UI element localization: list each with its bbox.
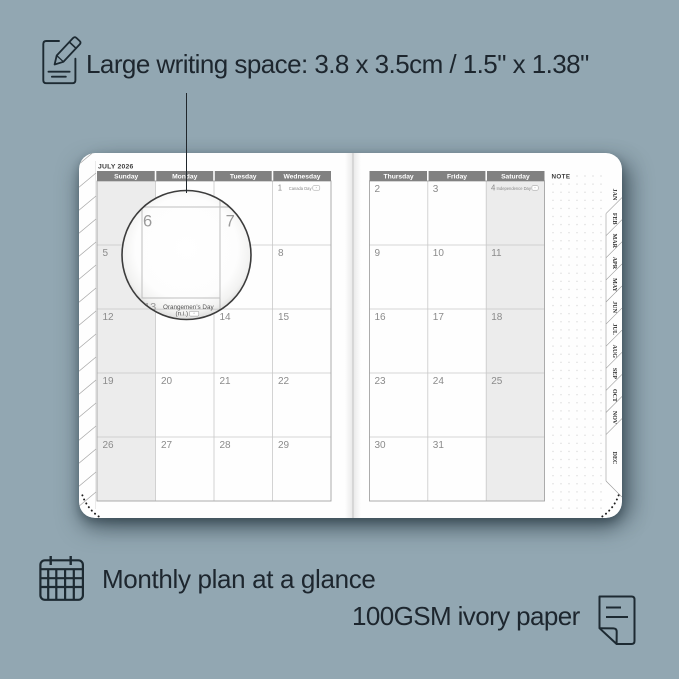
svg-text:JAN: JAN xyxy=(611,189,617,201)
svg-text:OCT: OCT xyxy=(611,389,617,402)
svg-text:Independence Day: Independence Day xyxy=(497,186,532,191)
svg-text:Orangemen’s Day: Orangemen’s Day xyxy=(163,304,214,311)
svg-text:10: 10 xyxy=(433,248,445,259)
svg-text:17: 17 xyxy=(433,312,445,323)
svg-text:NOV: NOV xyxy=(611,411,617,425)
svg-text:31: 31 xyxy=(433,440,445,451)
svg-text:1: 1 xyxy=(278,184,282,193)
svg-text:Canada Day: Canada Day xyxy=(289,186,313,191)
svg-text:Sunday: Sunday xyxy=(114,174,138,181)
svg-text:14: 14 xyxy=(220,312,232,323)
svg-text:11: 11 xyxy=(491,248,502,259)
svg-text:JULY 2026: JULY 2026 xyxy=(98,164,133,171)
svg-text:FEB: FEB xyxy=(611,213,617,225)
svg-text:4: 4 xyxy=(491,184,496,193)
svg-text:JUL: JUL xyxy=(611,324,617,335)
svg-text:26: 26 xyxy=(103,440,115,451)
svg-text:24: 24 xyxy=(433,376,445,387)
svg-text:23: 23 xyxy=(375,376,387,387)
svg-text:21: 21 xyxy=(220,376,232,387)
svg-text:3: 3 xyxy=(433,184,439,195)
svg-text:DEC: DEC xyxy=(611,452,617,465)
svg-text:2: 2 xyxy=(375,184,381,195)
svg-text:6: 6 xyxy=(143,213,152,231)
svg-text:8: 8 xyxy=(278,248,284,259)
svg-text:JUN: JUN xyxy=(611,301,617,313)
svg-text:MAR: MAR xyxy=(611,234,617,249)
svg-text:29: 29 xyxy=(278,440,290,451)
svg-text:25: 25 xyxy=(491,376,503,387)
svg-text:AUG: AUG xyxy=(611,345,617,359)
svg-text:27: 27 xyxy=(161,440,173,451)
svg-text:28: 28 xyxy=(220,440,232,451)
svg-text:15: 15 xyxy=(278,312,290,323)
svg-text:Saturday: Saturday xyxy=(501,174,530,181)
svg-text:Wednesday: Wednesday xyxy=(283,174,320,181)
svg-text:(n.i.): (n.i.) xyxy=(175,311,188,318)
svg-text:MAY: MAY xyxy=(611,278,617,292)
svg-text:19: 19 xyxy=(103,376,115,387)
svg-text:12: 12 xyxy=(103,312,115,323)
svg-text:16: 16 xyxy=(375,312,387,323)
svg-text:9: 9 xyxy=(375,248,381,259)
svg-text:30: 30 xyxy=(375,440,387,451)
svg-text:Tuesday: Tuesday xyxy=(230,174,257,181)
svg-text:APR: APR xyxy=(611,257,617,270)
svg-text:Friday: Friday xyxy=(447,174,467,181)
svg-text:18: 18 xyxy=(491,312,503,323)
svg-text:20: 20 xyxy=(161,376,173,387)
svg-text:NOTE: NOTE xyxy=(552,174,571,181)
svg-text:5: 5 xyxy=(103,248,109,259)
svg-text:Thursday: Thursday xyxy=(384,174,414,181)
svg-text:7: 7 xyxy=(226,213,235,231)
svg-text:SEP: SEP xyxy=(611,368,617,379)
svg-text:22: 22 xyxy=(278,376,290,387)
